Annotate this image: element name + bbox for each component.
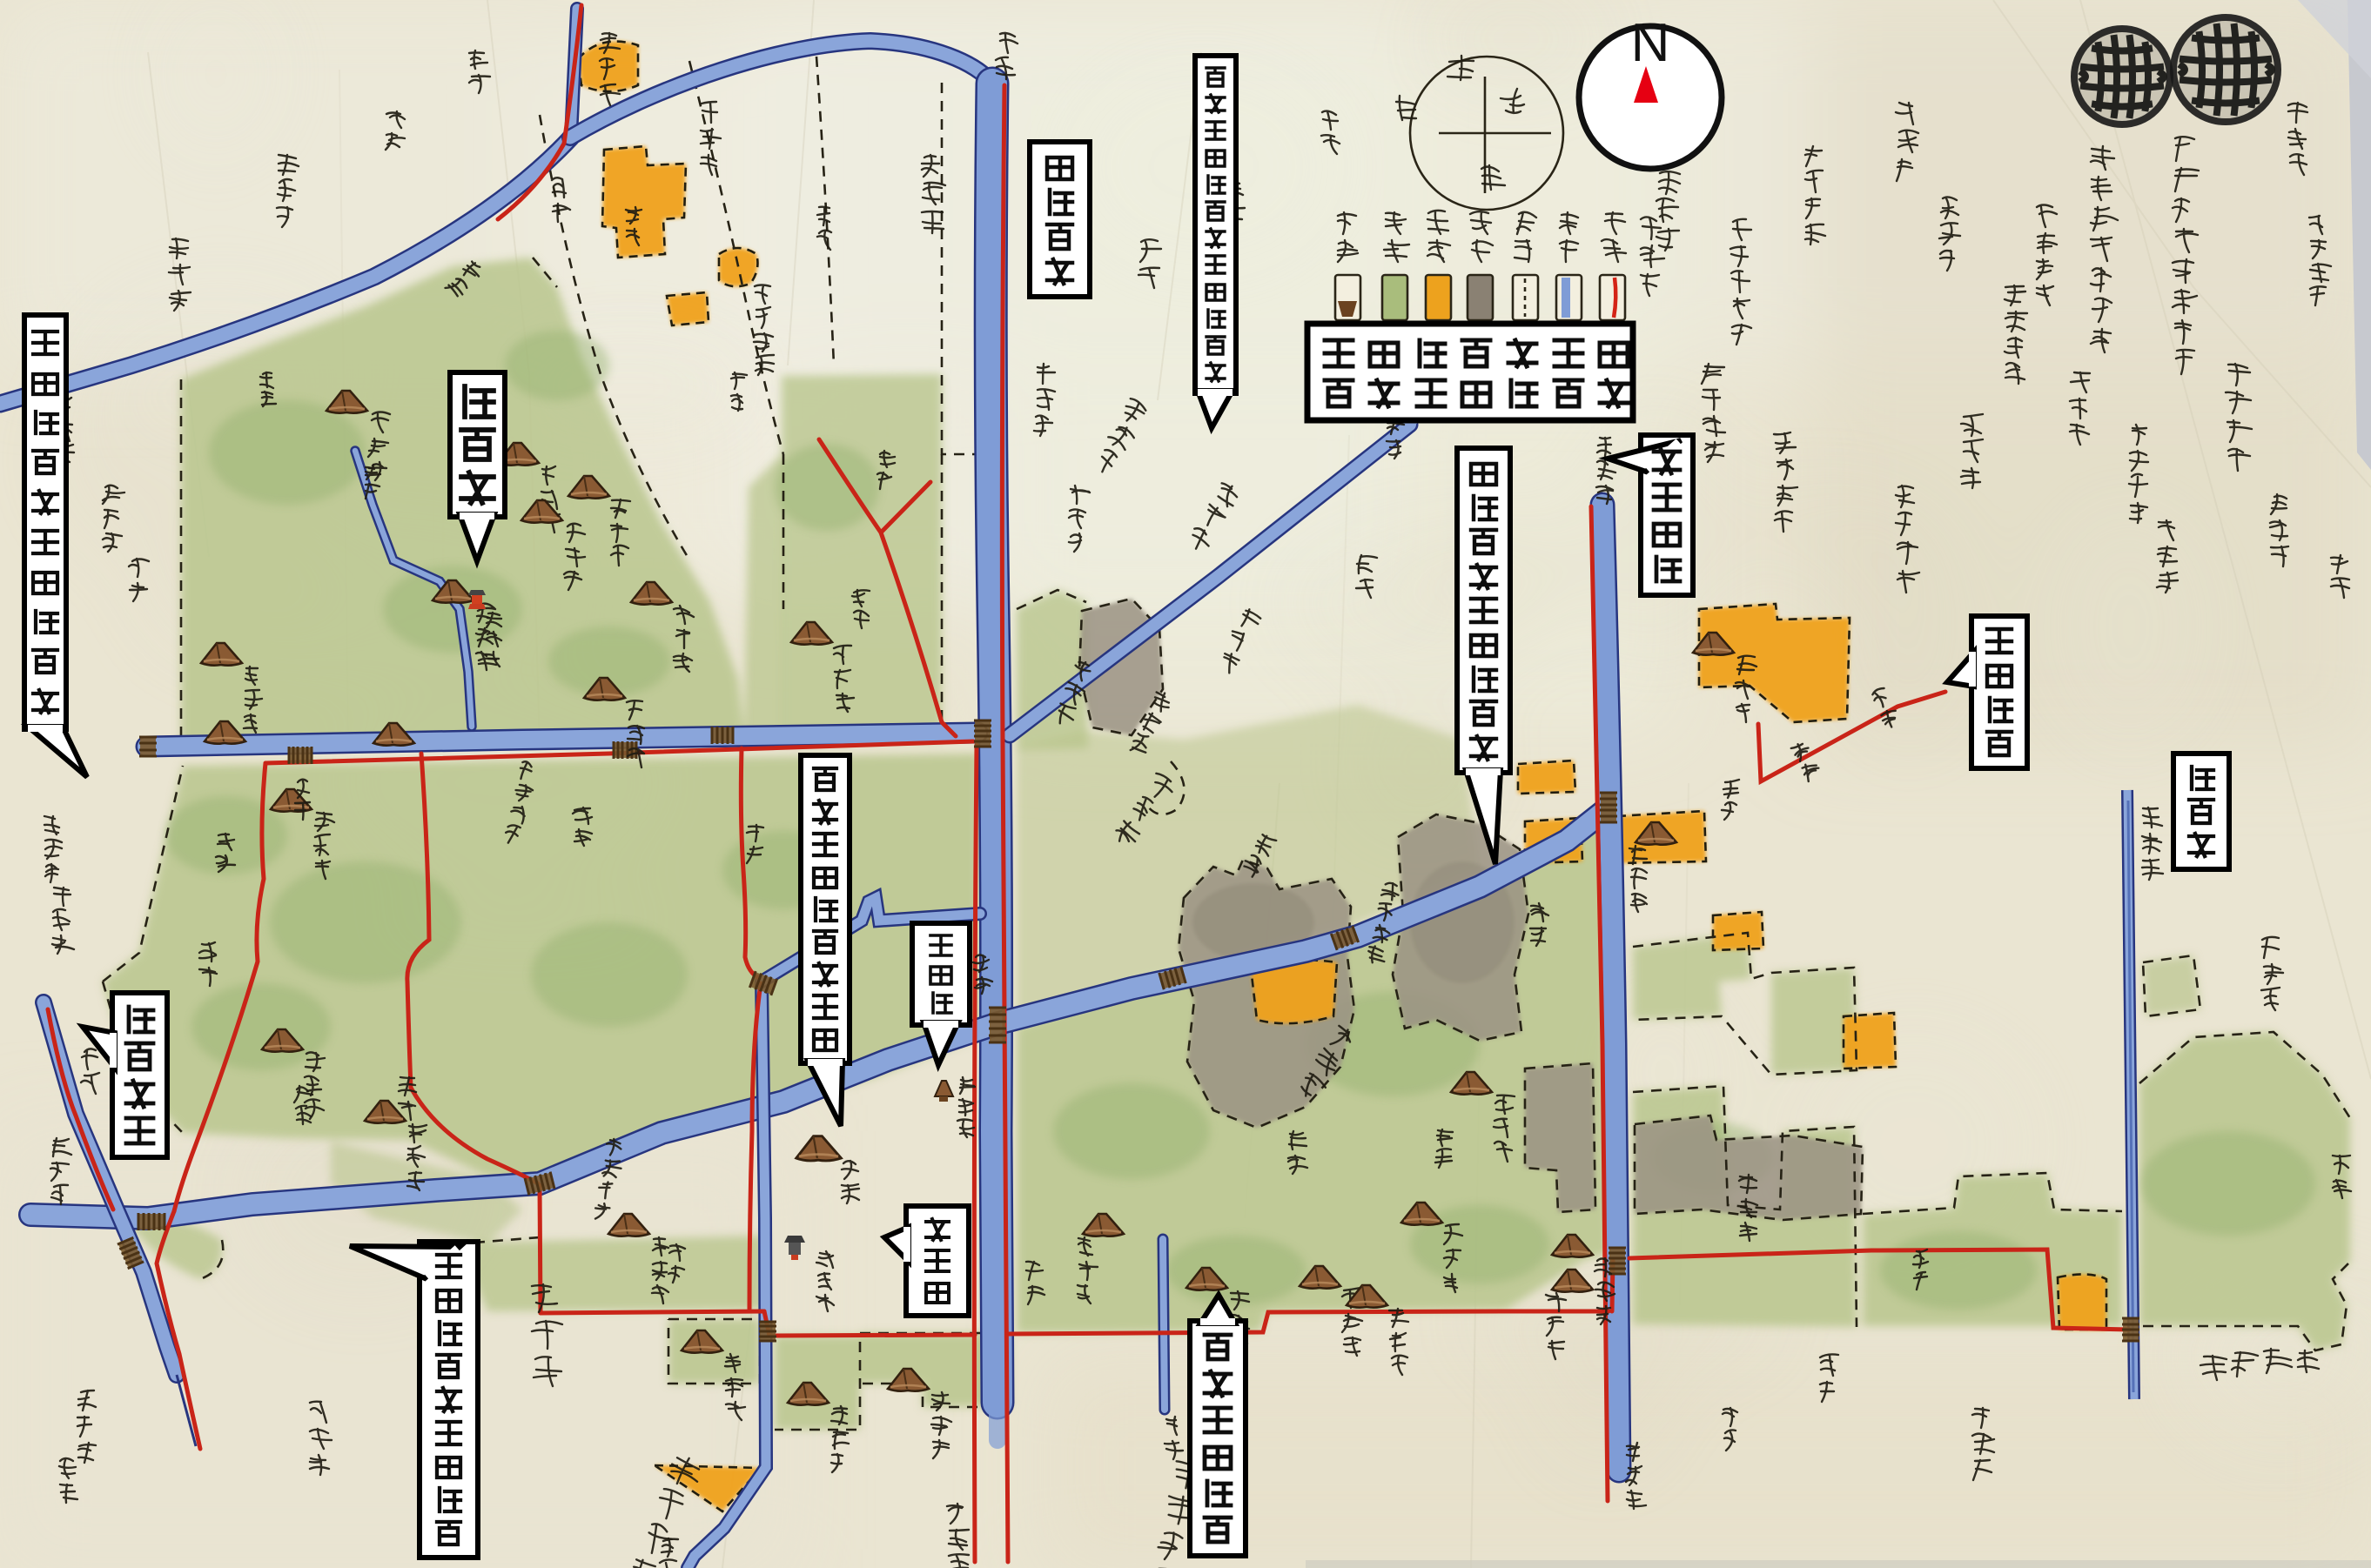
- svg-text:N: N: [1631, 13, 1670, 73]
